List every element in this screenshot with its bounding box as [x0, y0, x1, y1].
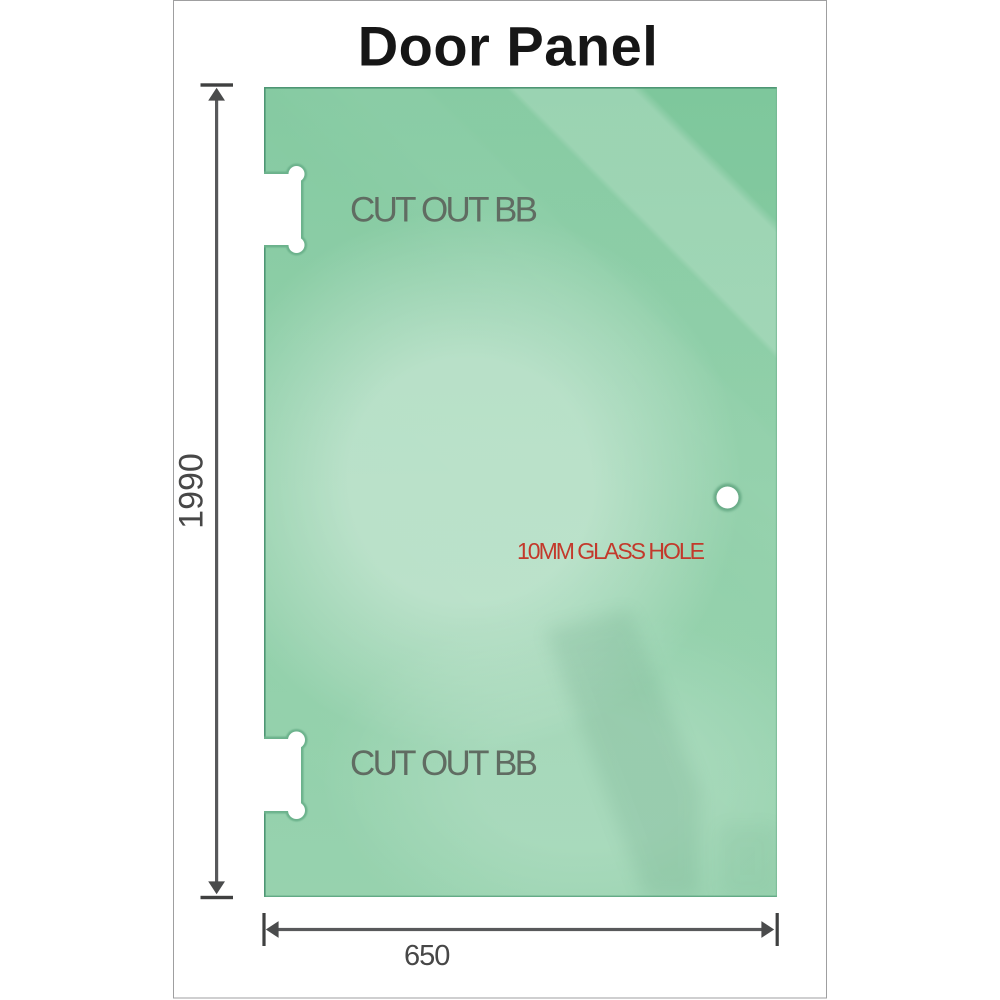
svg-text:CUT OUT BB: CUT OUT BB: [350, 191, 537, 230]
svg-text:CUT OUT BB: CUT OUT BB: [350, 744, 537, 783]
svg-text:650: 650: [404, 940, 449, 972]
svg-text:Door Panel: Door Panel: [358, 15, 659, 78]
svg-text:1990: 1990: [173, 453, 211, 529]
svg-text:10MM GLASS HOLE: 10MM GLASS HOLE: [517, 538, 705, 564]
